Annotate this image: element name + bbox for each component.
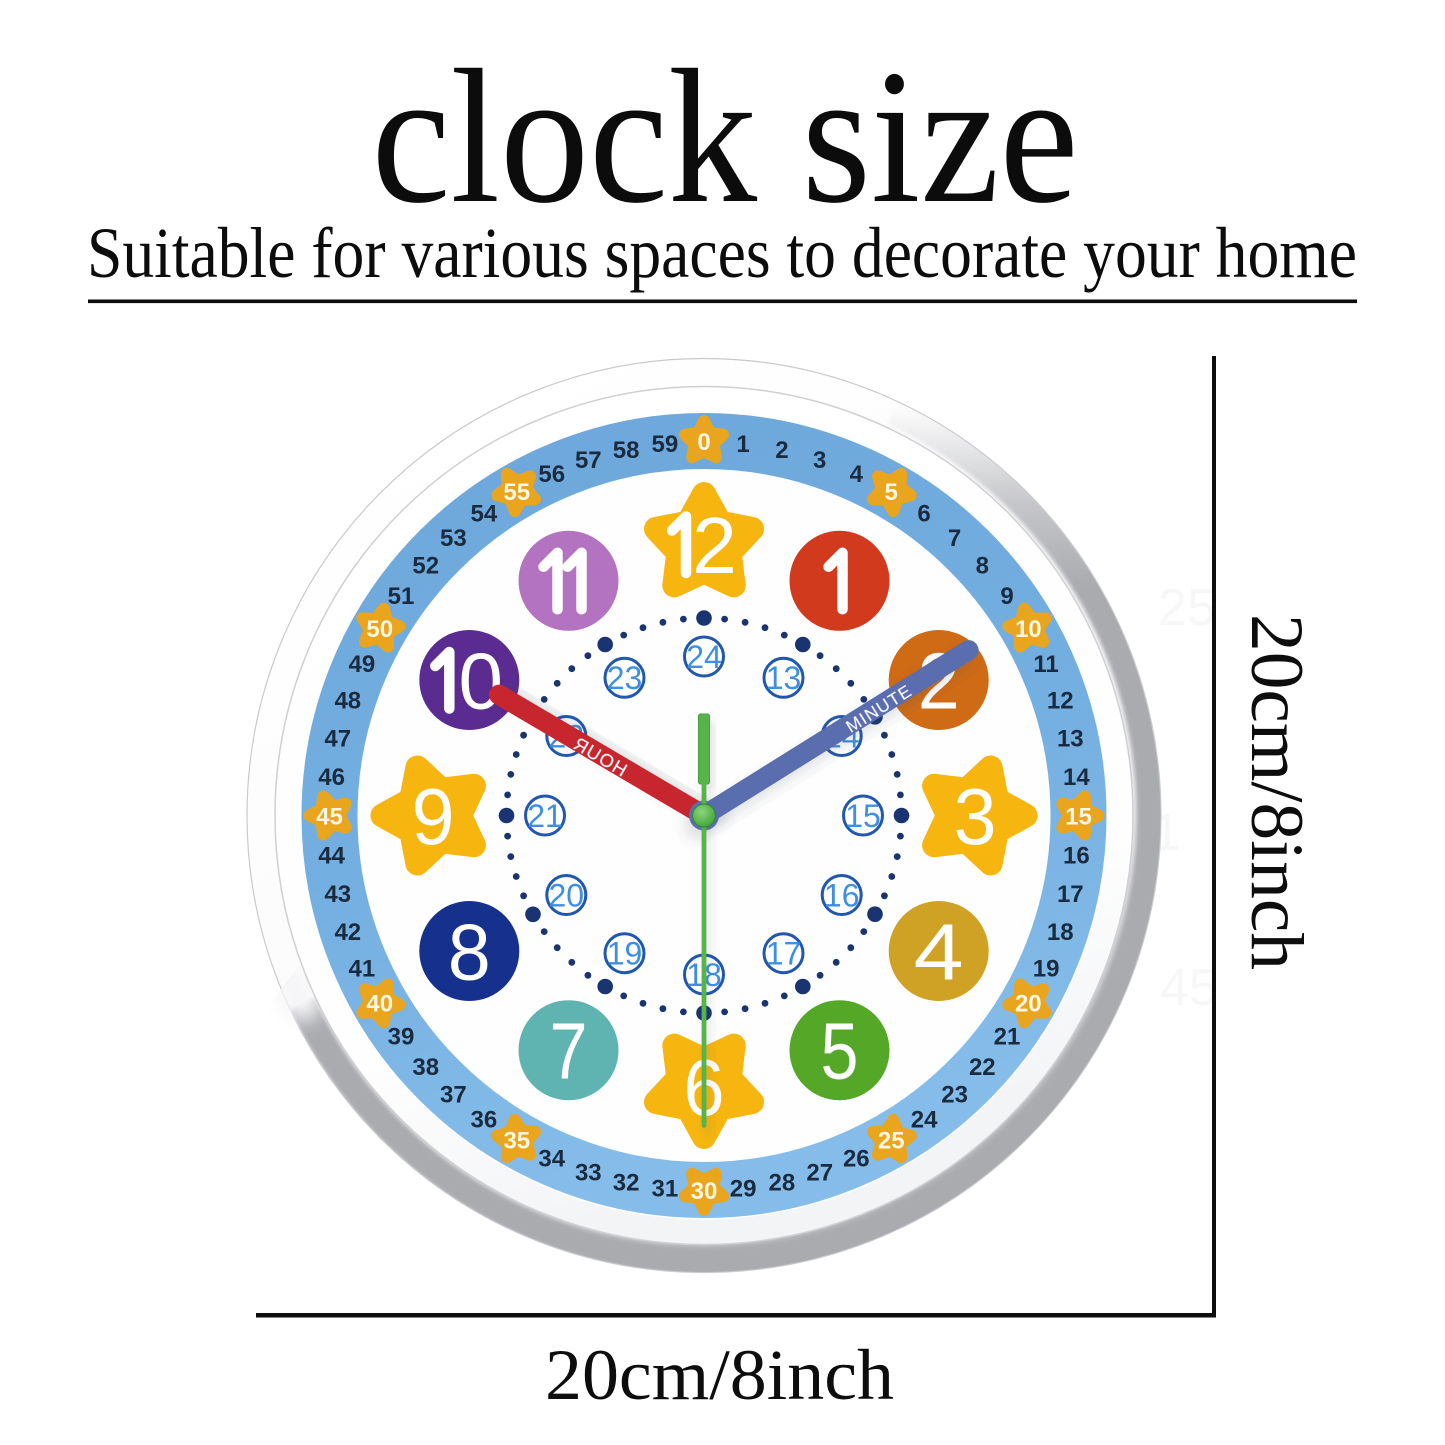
svg-text:32: 32 — [613, 1170, 640, 1197]
svg-text:28: 28 — [769, 1170, 796, 1197]
svg-text:20: 20 — [549, 877, 585, 913]
svg-text:35: 35 — [503, 1128, 530, 1155]
svg-text:18: 18 — [1047, 919, 1074, 946]
svg-text:Suitable for various spaces to: Suitable for various spaces to decorate … — [87, 213, 1357, 293]
svg-text:2: 2 — [775, 437, 788, 464]
svg-text:1: 1 — [736, 431, 749, 458]
svg-text:30: 30 — [691, 1178, 718, 1205]
svg-text:20: 20 — [1015, 991, 1042, 1018]
svg-text:10: 10 — [1015, 616, 1042, 643]
svg-text:15: 15 — [1065, 803, 1092, 830]
svg-text:23: 23 — [941, 1082, 968, 1109]
svg-text:41: 41 — [349, 956, 376, 983]
svg-text:53: 53 — [440, 525, 467, 552]
svg-text:7: 7 — [550, 1007, 588, 1096]
svg-text:58: 58 — [613, 437, 640, 464]
svg-text:29: 29 — [730, 1176, 757, 1203]
svg-text:0: 0 — [459, 637, 504, 726]
svg-text:21: 21 — [994, 1023, 1021, 1050]
svg-text:49: 49 — [349, 651, 376, 678]
svg-text:43: 43 — [324, 881, 351, 908]
svg-text:46: 46 — [318, 764, 345, 791]
svg-text:12: 12 — [1047, 688, 1074, 715]
svg-text:54: 54 — [471, 500, 498, 527]
svg-text:20cm/8inch: 20cm/8inch — [1235, 614, 1318, 970]
svg-text:50: 50 — [366, 616, 393, 643]
svg-text:6: 6 — [917, 500, 930, 527]
svg-text:48: 48 — [334, 688, 361, 715]
svg-text:33: 33 — [575, 1160, 602, 1187]
svg-text:31: 31 — [652, 1176, 679, 1203]
svg-text:51: 51 — [388, 583, 415, 610]
svg-text:4: 4 — [850, 461, 864, 488]
svg-text:39: 39 — [388, 1023, 415, 1050]
svg-text:7: 7 — [948, 525, 961, 552]
svg-text:40: 40 — [366, 991, 393, 1018]
svg-text:17: 17 — [766, 936, 802, 972]
svg-text:16: 16 — [824, 877, 860, 913]
svg-text:36: 36 — [471, 1106, 498, 1133]
svg-text:25: 25 — [1158, 579, 1216, 637]
svg-text:19: 19 — [1033, 956, 1060, 983]
svg-text:9: 9 — [1000, 583, 1013, 610]
svg-text:20cm/8inch: 20cm/8inch — [545, 1335, 894, 1415]
svg-text:57: 57 — [575, 447, 602, 474]
svg-text:37: 37 — [440, 1082, 467, 1109]
svg-text:5: 5 — [821, 1007, 859, 1096]
svg-text:59: 59 — [652, 431, 679, 458]
svg-text:17: 17 — [1057, 881, 1084, 908]
svg-text:0: 0 — [697, 429, 710, 456]
svg-text:44: 44 — [318, 842, 345, 869]
svg-text:45: 45 — [316, 803, 343, 830]
svg-text:clock size: clock size — [372, 30, 1079, 243]
svg-text:27: 27 — [806, 1160, 833, 1187]
svg-text:55: 55 — [503, 479, 530, 506]
svg-text:24: 24 — [911, 1106, 938, 1133]
svg-text:11: 11 — [1033, 651, 1058, 678]
svg-text:4: 4 — [914, 908, 964, 997]
svg-text:52: 52 — [412, 553, 439, 580]
svg-text:8: 8 — [448, 908, 491, 997]
svg-text:22: 22 — [969, 1054, 996, 1081]
svg-text:3: 3 — [954, 772, 997, 861]
svg-text:16: 16 — [1063, 842, 1090, 869]
svg-text:42: 42 — [334, 919, 361, 946]
svg-text:13: 13 — [766, 660, 802, 696]
svg-text:26: 26 — [843, 1145, 870, 1172]
svg-text:24: 24 — [686, 639, 722, 675]
svg-text:47: 47 — [324, 725, 351, 752]
svg-text:2: 2 — [692, 501, 737, 590]
svg-text:23: 23 — [607, 660, 643, 696]
svg-text:25: 25 — [878, 1128, 905, 1155]
svg-text:21: 21 — [527, 798, 563, 834]
svg-text:15: 15 — [845, 798, 881, 834]
svg-text:19: 19 — [607, 936, 643, 972]
svg-text:45: 45 — [1160, 959, 1218, 1017]
svg-text:13: 13 — [1057, 725, 1084, 752]
svg-text:56: 56 — [538, 461, 565, 488]
svg-text:8: 8 — [976, 553, 989, 580]
svg-text:5: 5 — [885, 479, 898, 506]
svg-text:14: 14 — [1063, 764, 1090, 791]
svg-text:3: 3 — [813, 447, 826, 474]
svg-text:9: 9 — [412, 772, 455, 861]
svg-text:38: 38 — [412, 1054, 439, 1081]
svg-text:34: 34 — [538, 1145, 565, 1172]
